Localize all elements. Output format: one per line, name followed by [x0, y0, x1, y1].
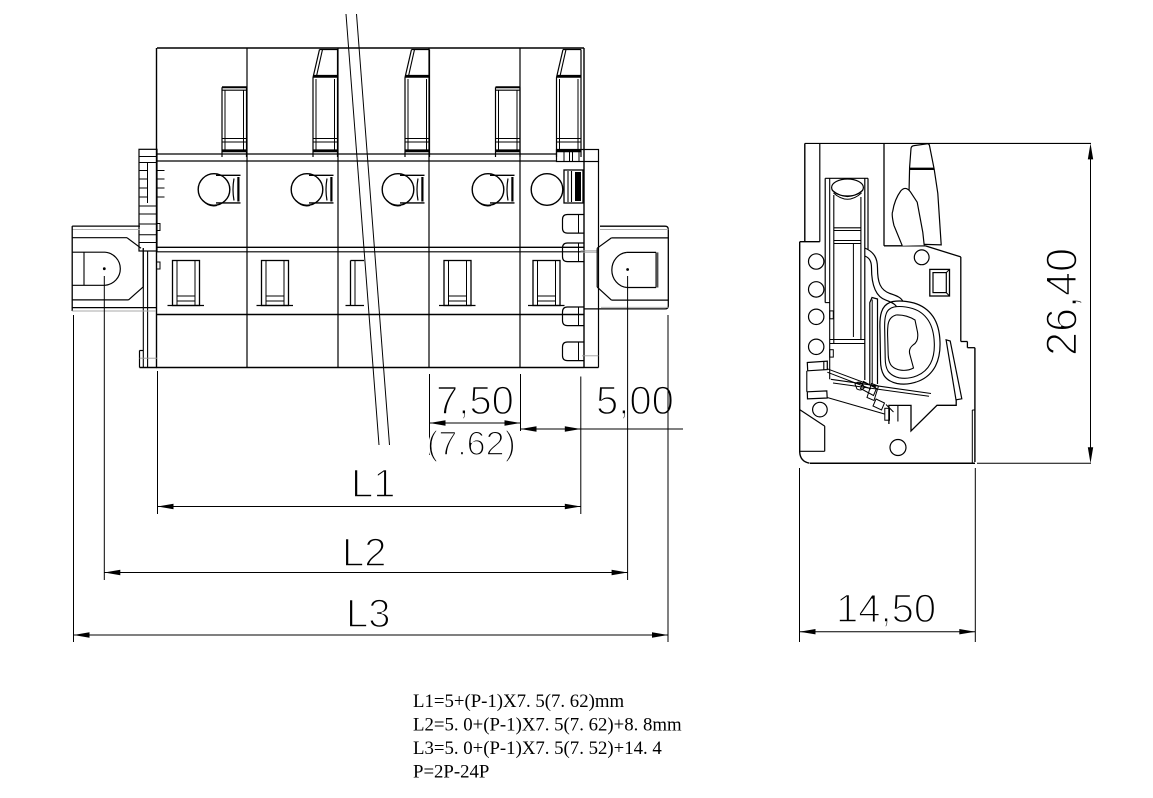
- svg-text:14,50: 14,50: [836, 587, 936, 631]
- svg-text:7,50: 7,50: [436, 379, 514, 423]
- svg-text:P=2P-24P: P=2P-24P: [413, 762, 489, 783]
- svg-text:(7.62): (7.62): [427, 425, 516, 463]
- svg-text:L3=5. 0+(P-1)X7. 5(7. 52)+14.: L3=5. 0+(P-1)X7. 5(7. 52)+14. 4: [413, 738, 662, 759]
- svg-text:26,40: 26,40: [1039, 248, 1087, 356]
- svg-text:L1=5+(P-1)X7. 5(7. 62)mm: L1=5+(P-1)X7. 5(7. 62)mm: [413, 691, 624, 712]
- svg-text:L2: L2: [342, 531, 387, 575]
- svg-text:L1: L1: [351, 462, 396, 506]
- svg-text:L2=5. 0+(P-1)X7. 5(7. 62)+8. 8: L2=5. 0+(P-1)X7. 5(7. 62)+8. 8mm: [413, 715, 682, 736]
- svg-text:L3: L3: [346, 592, 391, 636]
- svg-text:5,00: 5,00: [596, 379, 674, 423]
